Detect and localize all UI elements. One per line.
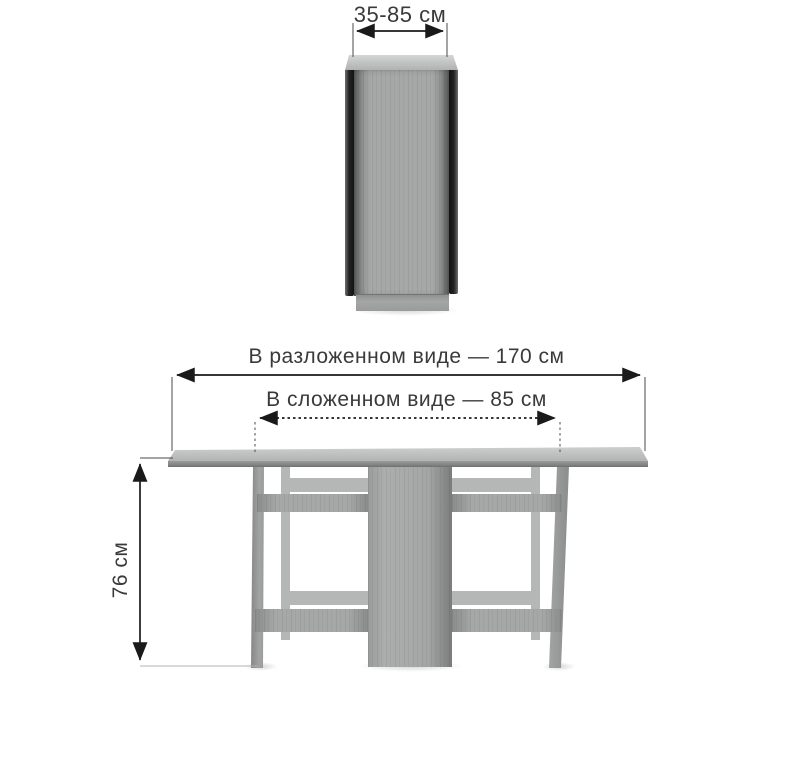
dimension-lines-overlay [0, 0, 800, 762]
dimension-diagram: 35-85 см В разложенном виде — 170 см В с… [0, 0, 800, 762]
